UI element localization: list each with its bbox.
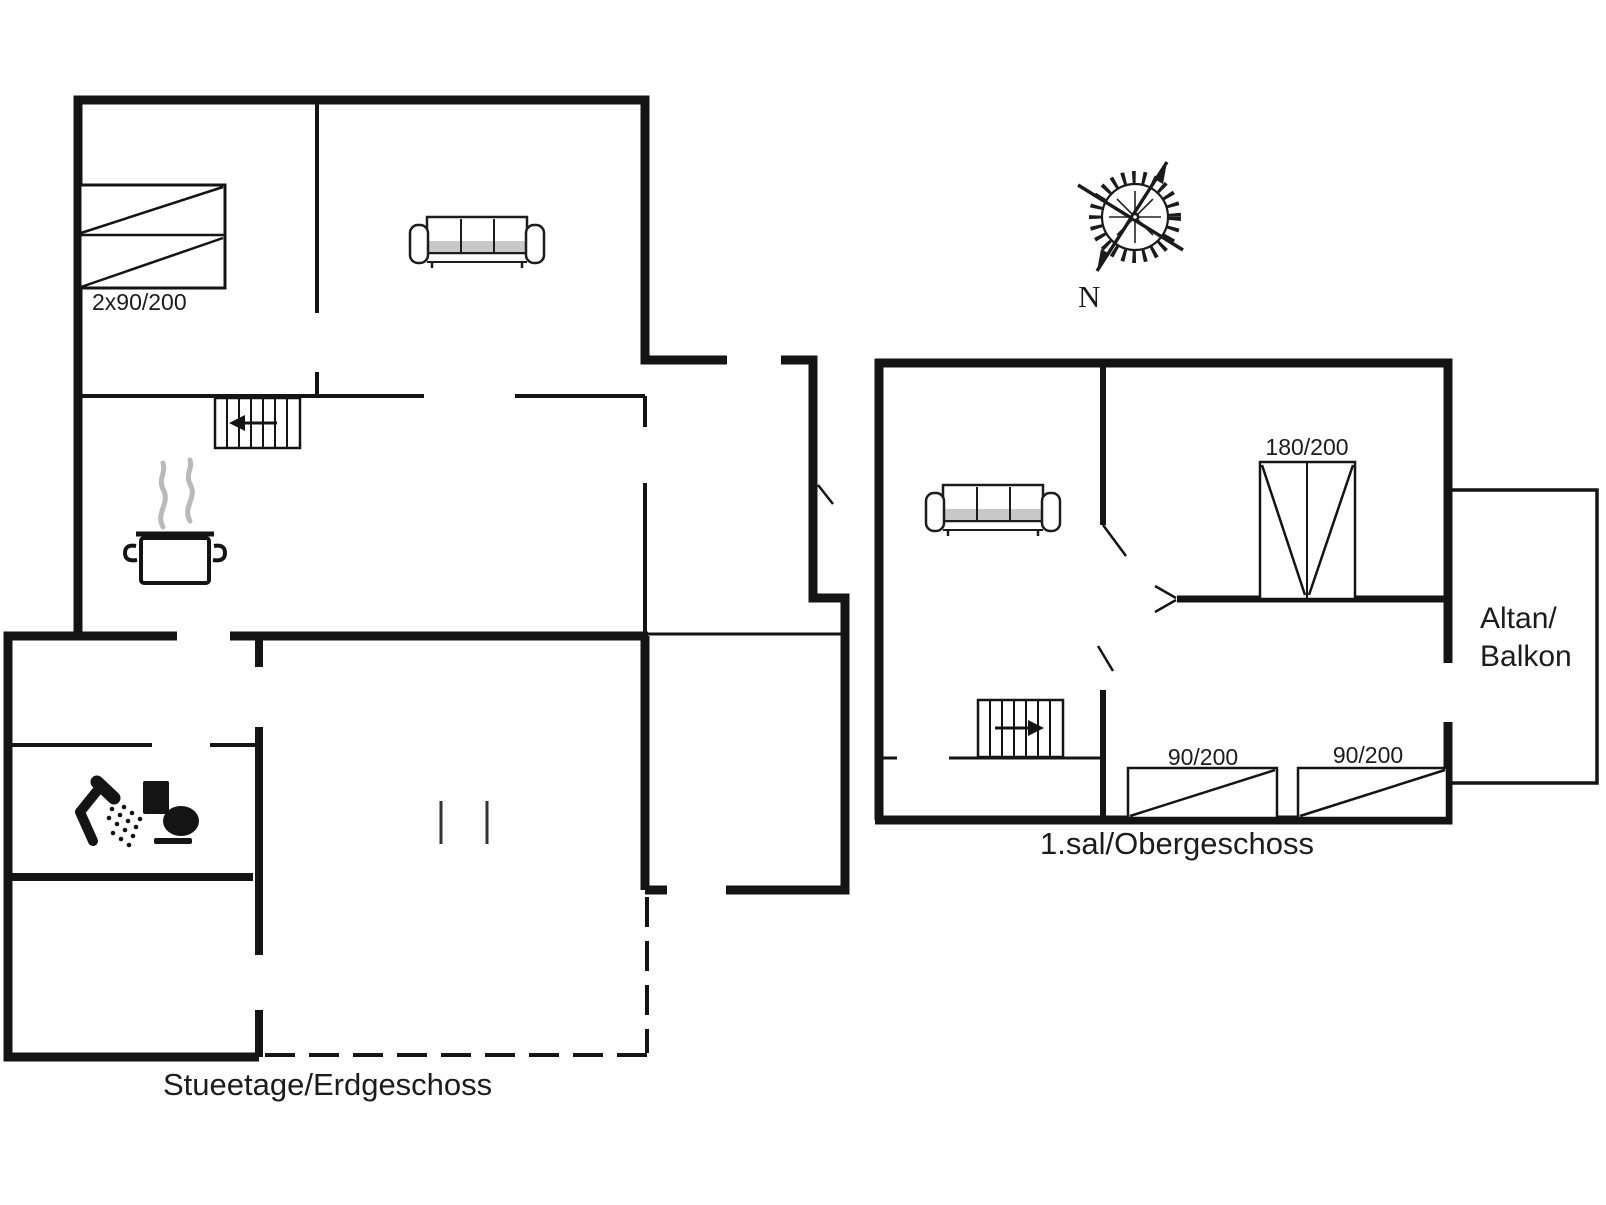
upper-door-swings [1098,525,1176,671]
balcony-label-line2: Balkon [1480,640,1572,673]
bed-left-size-label: 90/200 [1168,744,1238,770]
balcony-outline [1452,490,1597,783]
upper-sofa-icon [926,485,1060,536]
shower-icon [80,782,142,847]
upper-stairs-icon [879,700,1103,758]
bathroom-walls-thick [8,636,259,1057]
door-opening-ticks [441,801,487,844]
toilet-icon [143,781,199,844]
terrace-dashed-outline [265,897,647,1055]
double-bed-icon [80,185,225,288]
floorplan-diagram: 2x90/200 Stueetage/Erdgeschoss 180/200 9… [0,0,1606,1205]
stairs-icon [215,398,300,448]
wardrobe-icon [1260,462,1355,599]
cooking-pot-icon [125,534,225,583]
compass-north-label: N [1078,279,1100,314]
upper-floor-label: 1.sal/Obergeschoss [1040,826,1314,861]
ground-bed-size-label: 2x90/200 [92,289,187,315]
wardrobe-size-label: 180/200 [1265,434,1348,460]
extension-door-swing [818,485,833,504]
single-bed-left-icon [1128,768,1277,818]
ground-floor-label: Stueetage/Erdgeschoss [163,1067,492,1102]
single-bed-right-icon [1298,768,1447,818]
ground-lowerleft-outer-walls [8,636,648,1057]
balcony-label-line1: Altan/ [1480,602,1557,635]
bed-right-size-label: 90/200 [1333,742,1403,768]
sofa-icon [410,217,544,268]
floorplan-page: 2x90/200 Stueetage/Erdgeschoss 180/200 9… [0,0,1606,1205]
steam-icon [161,460,193,527]
compass-rose-icon [1078,162,1183,271]
